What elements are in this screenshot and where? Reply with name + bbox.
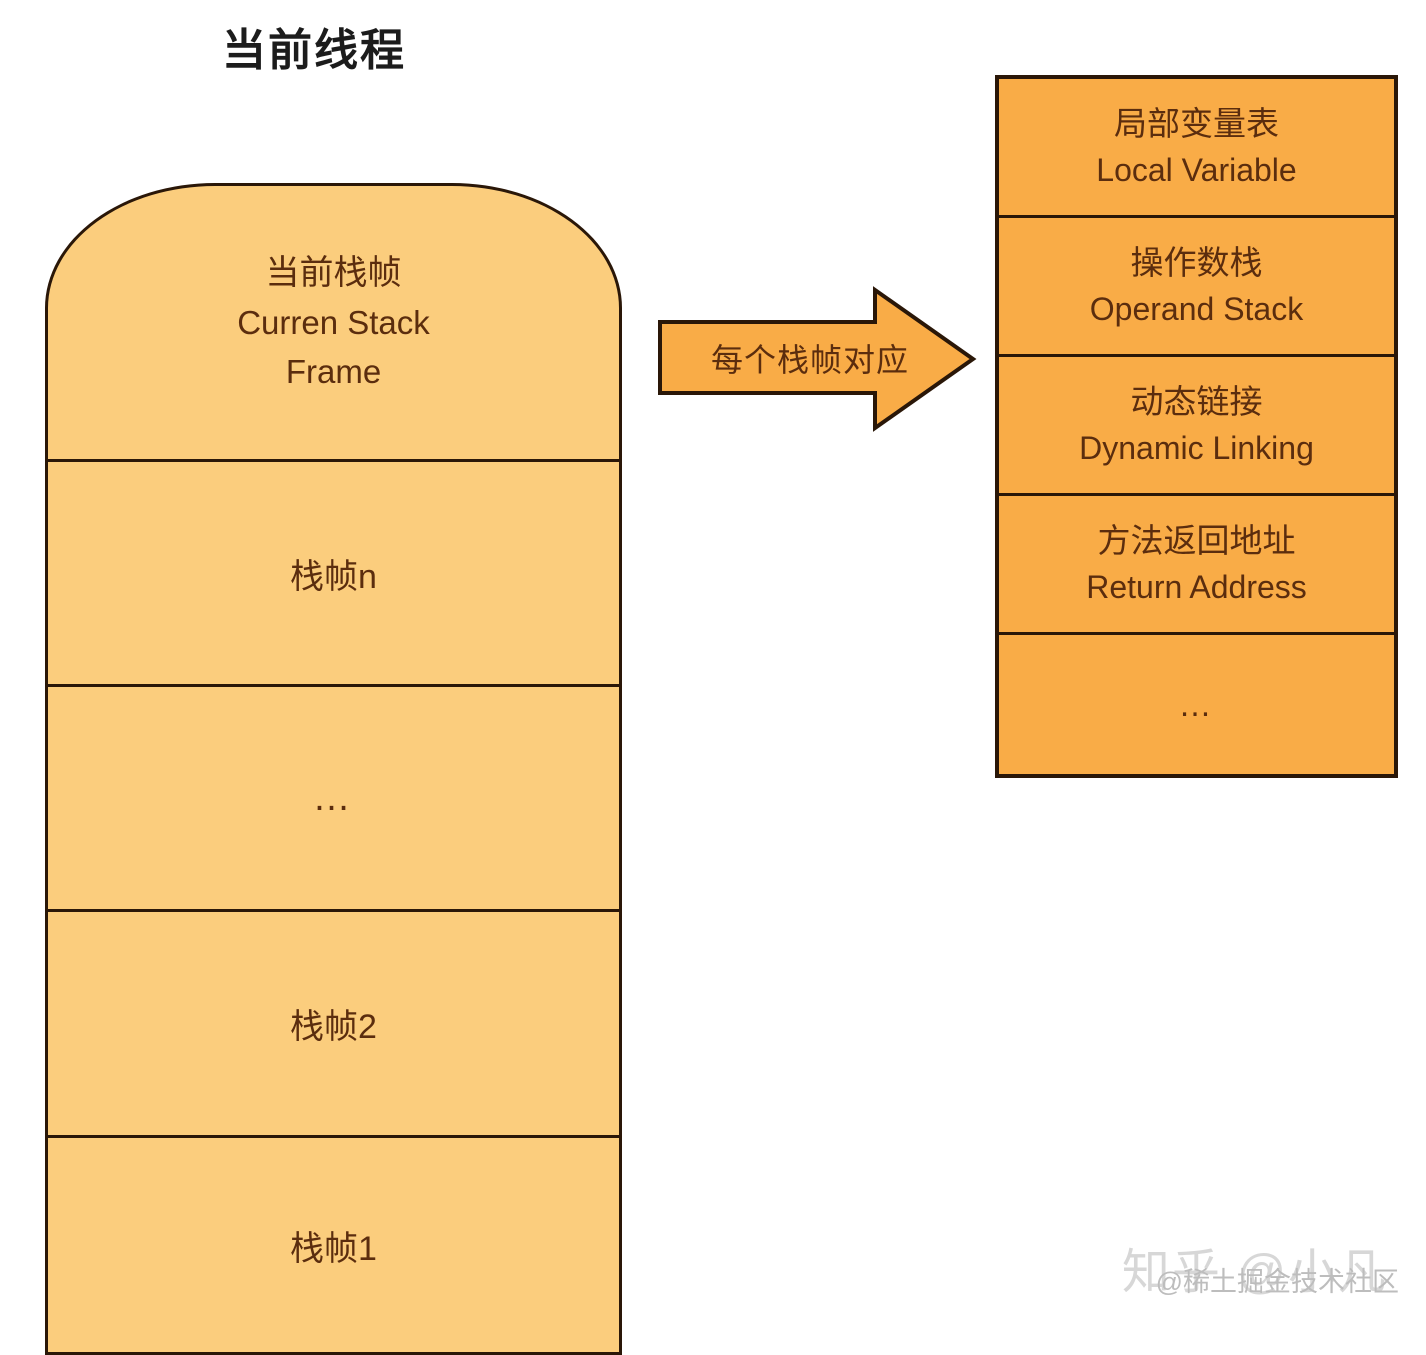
return-address-zh: 方法返回地址 [1098, 518, 1296, 564]
stack-ellipsis-label: … [313, 777, 355, 820]
local-variable-en: Local Variable [1096, 147, 1296, 193]
juejin-watermark: @稀土掘金技术社区 [1156, 1260, 1399, 1299]
operand-stack-en: Operand Stack [1090, 286, 1303, 332]
detail-row-return-address: 方法返回地址 Return Address [999, 496, 1394, 635]
return-address-en: Return Address [1086, 564, 1307, 610]
detail-ellipsis-label: … [1179, 682, 1215, 728]
stack-frame-n-label: 栈帧n [290, 549, 377, 598]
operand-stack-zh: 操作数栈 [1131, 240, 1263, 286]
detail-row-ellipsis: … [999, 635, 1394, 774]
stack-frame-current-label-zh: 当前栈帧 [266, 249, 402, 298]
stack-frame-current: 当前栈帧 Curren Stack Frame [45, 183, 622, 462]
stack-frame-n: 栈帧n [45, 459, 622, 687]
thread-stack: 当前栈帧 Curren Stack Frame 栈帧n … 栈帧2 栈帧1 [45, 183, 622, 1355]
stack-frame-current-label-en: Curren Stack Frame [209, 298, 459, 396]
stack-frame-ellipsis: … [45, 684, 622, 912]
mapping-arrow-label: 每个栈帧对应 [665, 322, 955, 393]
page-title: 当前线程 [222, 14, 406, 78]
dynamic-linking-en: Dynamic Linking [1079, 425, 1314, 471]
stack-frame-2-label: 栈帧2 [290, 999, 377, 1048]
detail-row-local-variable: 局部变量表 Local Variable [999, 79, 1394, 218]
detail-row-dynamic-linking: 动态链接 Dynamic Linking [999, 357, 1394, 496]
dynamic-linking-zh: 动态链接 [1131, 379, 1263, 425]
detail-row-operand-stack: 操作数栈 Operand Stack [999, 218, 1394, 357]
stack-frame-1: 栈帧1 [45, 1135, 622, 1355]
stack-frame-1-label: 栈帧1 [290, 1221, 377, 1270]
stack-frame-2: 栈帧2 [45, 909, 622, 1138]
frame-detail-table: 局部变量表 Local Variable 操作数栈 Operand Stack … [995, 75, 1398, 778]
local-variable-zh: 局部变量表 [1114, 101, 1279, 147]
